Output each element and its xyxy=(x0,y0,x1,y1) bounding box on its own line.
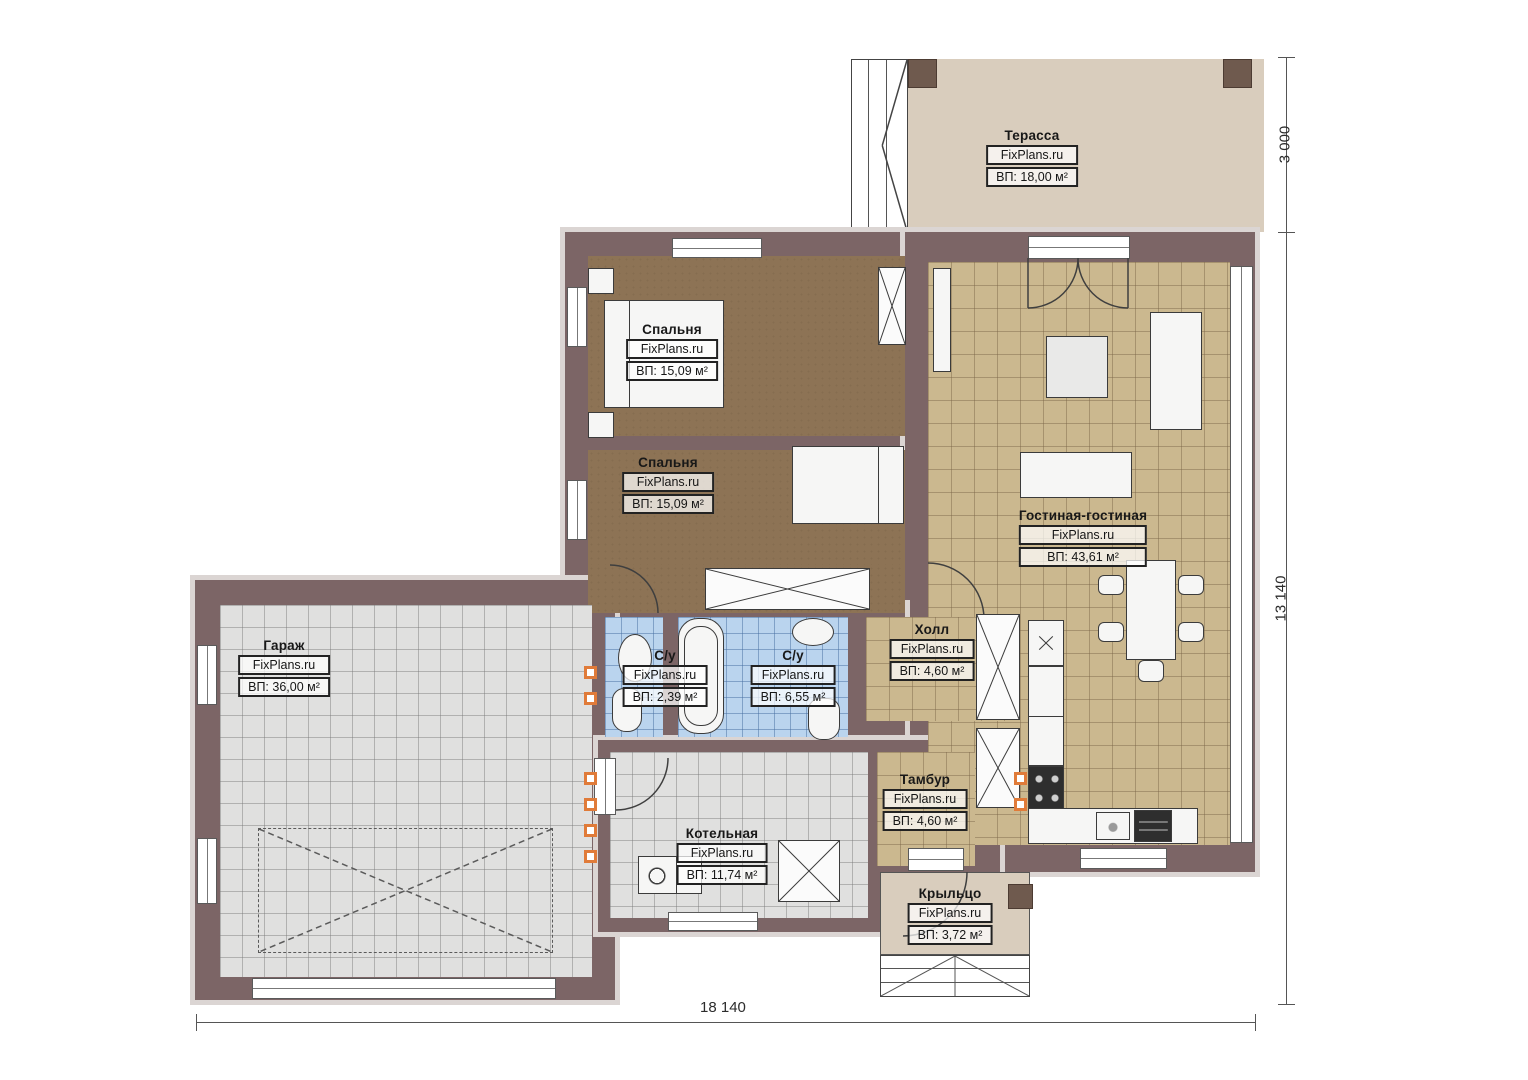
porch-steps-diagonals xyxy=(881,956,1029,996)
wardrobe-x xyxy=(706,569,869,609)
bedroom1-top-window xyxy=(672,238,762,258)
bedroom2-left-window xyxy=(567,480,587,540)
room-area: ВП: 36,00 м² xyxy=(238,677,330,697)
vent-icon xyxy=(584,772,597,785)
watermark: FixPlans.ru xyxy=(238,655,330,675)
room-label-boiler: Котельная FixPlans.ru ВП: 11,74 м² xyxy=(677,826,768,885)
garage-left-window-1 xyxy=(197,645,217,705)
watermark: FixPlans.ru xyxy=(883,789,968,809)
bed-2-pillow xyxy=(878,446,904,524)
corridor-wardrobe xyxy=(705,568,870,610)
terrace-door-arc-right xyxy=(1078,258,1130,310)
chair-left-2 xyxy=(1098,622,1124,642)
room-area: ВП: 43,61 м² xyxy=(1019,547,1147,567)
living-radiator xyxy=(933,268,951,372)
living-hall-door-arc xyxy=(928,563,986,621)
room-area: ВП: 18,00 м² xyxy=(986,167,1078,187)
chair-left-1 xyxy=(1098,575,1124,595)
cabinet-x xyxy=(1029,621,1063,665)
vent-icon xyxy=(1014,798,1027,811)
room-name: Гостиная-гостиная xyxy=(1019,508,1147,523)
wardrobe-x xyxy=(977,615,1019,719)
terrace-floor xyxy=(908,59,1264,232)
vent-icon xyxy=(584,850,597,863)
room-label-living: Гостиная-гостиная FixPlans.ru ВП: 43,61 … xyxy=(1019,508,1147,567)
garage-gate xyxy=(252,978,556,999)
watermark: FixPlans.ru xyxy=(626,339,718,359)
vent-icon xyxy=(584,692,597,705)
terrace-stairs xyxy=(851,59,908,232)
garage-left-window-2 xyxy=(197,838,217,904)
vent-icon xyxy=(584,798,597,811)
room-name: Спальня xyxy=(626,322,718,337)
bedroom1-wardrobe xyxy=(878,267,906,345)
porch-door-opening xyxy=(908,848,964,871)
dim-tick xyxy=(1255,1014,1256,1031)
room-area: ВП: 4,60 м² xyxy=(890,661,975,681)
chair-right-1 xyxy=(1178,575,1204,595)
dining-table xyxy=(1126,560,1176,660)
nightstand-1a xyxy=(588,268,614,294)
room-name: Спальня xyxy=(622,455,714,470)
room-label-bedroom-2: Спальня FixPlans.ru ВП: 15,09 м² xyxy=(622,455,714,514)
boiler-bottom-window xyxy=(668,912,758,931)
room-label-garage: Гараж FixPlans.ru ВП: 36,00 м² xyxy=(238,638,330,697)
watermark: FixPlans.ru xyxy=(623,665,708,685)
bedroom2-door-arc xyxy=(610,565,660,615)
dim-value-right-main: 13 140 xyxy=(1272,576,1289,622)
room-area: ВП: 2,39 м² xyxy=(623,687,708,707)
watermark: FixPlans.ru xyxy=(677,843,768,863)
room-name: Холл xyxy=(890,622,975,637)
chair-bottom xyxy=(1138,660,1164,682)
chair-right-2 xyxy=(1178,622,1204,642)
living-bottom-window xyxy=(1080,848,1167,869)
sofa-bottom xyxy=(1020,452,1132,498)
room-name: С/у xyxy=(751,648,836,663)
boiler-door-arc xyxy=(616,758,670,812)
dim-tick xyxy=(196,1014,197,1031)
room-name: Крыльцо xyxy=(908,886,993,901)
room-name: Гараж xyxy=(238,638,330,653)
dim-tick xyxy=(1278,1004,1295,1005)
vent-icon xyxy=(1014,772,1027,785)
boiler-shaft xyxy=(778,840,840,902)
garage-parking-area xyxy=(258,828,553,953)
room-name: Терасса xyxy=(986,128,1078,143)
floor-plan: Терасса FixPlans.ru ВП: 18,00 м² Спальня… xyxy=(0,0,1528,1080)
nightstand-1b xyxy=(588,412,614,438)
watermark: FixPlans.ru xyxy=(890,639,975,659)
room-area: ВП: 15,09 м² xyxy=(626,361,718,381)
terrace-door-opening xyxy=(1028,236,1130,259)
room-label-bedroom-1: Спальня FixPlans.ru ВП: 15,09 м² xyxy=(626,322,718,381)
room-area: ВП: 15,09 м² xyxy=(622,494,714,514)
wardrobe-x xyxy=(977,729,1019,807)
terrace-column-left xyxy=(908,59,937,88)
shaft-x xyxy=(779,841,839,901)
watermark: FixPlans.ru xyxy=(1019,525,1147,545)
bedroom1-left-window xyxy=(567,287,587,347)
dim-value-bottom: 18 140 xyxy=(700,999,746,1016)
hall-wardrobe xyxy=(976,614,1020,720)
room-name: С/у xyxy=(623,648,708,663)
coffee-table xyxy=(1046,336,1108,398)
kitchen-cabinet-top xyxy=(1028,620,1064,666)
garage-boiler-door-opening xyxy=(594,758,616,815)
kitchen-sink xyxy=(1096,812,1130,840)
parking-x xyxy=(259,829,552,952)
kitchen-counter-left xyxy=(1028,666,1064,766)
porch-column xyxy=(1008,884,1033,909)
room-name: Котельная xyxy=(677,826,768,841)
stove xyxy=(1028,766,1064,810)
room-name: Тамбур xyxy=(883,772,968,787)
terrace-door-arc-left xyxy=(1028,258,1080,310)
room-area: ВП: 3,72 м² xyxy=(908,925,993,945)
dim-line-bottom xyxy=(196,1022,1256,1023)
room-area: ВП: 11,74 м² xyxy=(677,865,768,885)
room-label-terrace: Терасса FixPlans.ru ВП: 18,00 м² xyxy=(986,128,1078,187)
watermark: FixPlans.ru xyxy=(622,472,714,492)
dim-value-right-top: 3 000 xyxy=(1276,126,1293,164)
sofa-right xyxy=(1150,312,1202,430)
room-area: ВП: 6,55 м² xyxy=(751,687,836,707)
watermark: FixPlans.ru xyxy=(908,903,993,923)
vent-icon xyxy=(584,666,597,679)
stairs-direction-line xyxy=(852,60,907,231)
room-label-bathroom: С/у FixPlans.ru ВП: 6,55 м² xyxy=(751,648,836,707)
room-label-porch: Крыльцо FixPlans.ru ВП: 3,72 м² xyxy=(908,886,993,945)
wardrobe-x xyxy=(879,268,905,344)
watermark: FixPlans.ru xyxy=(986,145,1078,165)
vent-icon xyxy=(584,824,597,837)
room-label-hall: Холл FixPlans.ru ВП: 4,60 м² xyxy=(890,622,975,681)
bathroom-sink xyxy=(792,618,834,646)
room-area: ВП: 4,60 м² xyxy=(883,811,968,831)
porch-steps xyxy=(880,955,1030,997)
living-right-window-band xyxy=(1230,266,1253,843)
watermark: FixPlans.ru xyxy=(751,665,836,685)
hall-wardrobe-2 xyxy=(976,728,1020,808)
terrace-column-right xyxy=(1223,59,1252,88)
dishwasher xyxy=(1134,810,1172,842)
dim-tick xyxy=(1278,57,1295,58)
room-label-tambur: Тамбур FixPlans.ru ВП: 4,60 м² xyxy=(883,772,968,831)
room-label-wc: С/у FixPlans.ru ВП: 2,39 м² xyxy=(623,648,708,707)
